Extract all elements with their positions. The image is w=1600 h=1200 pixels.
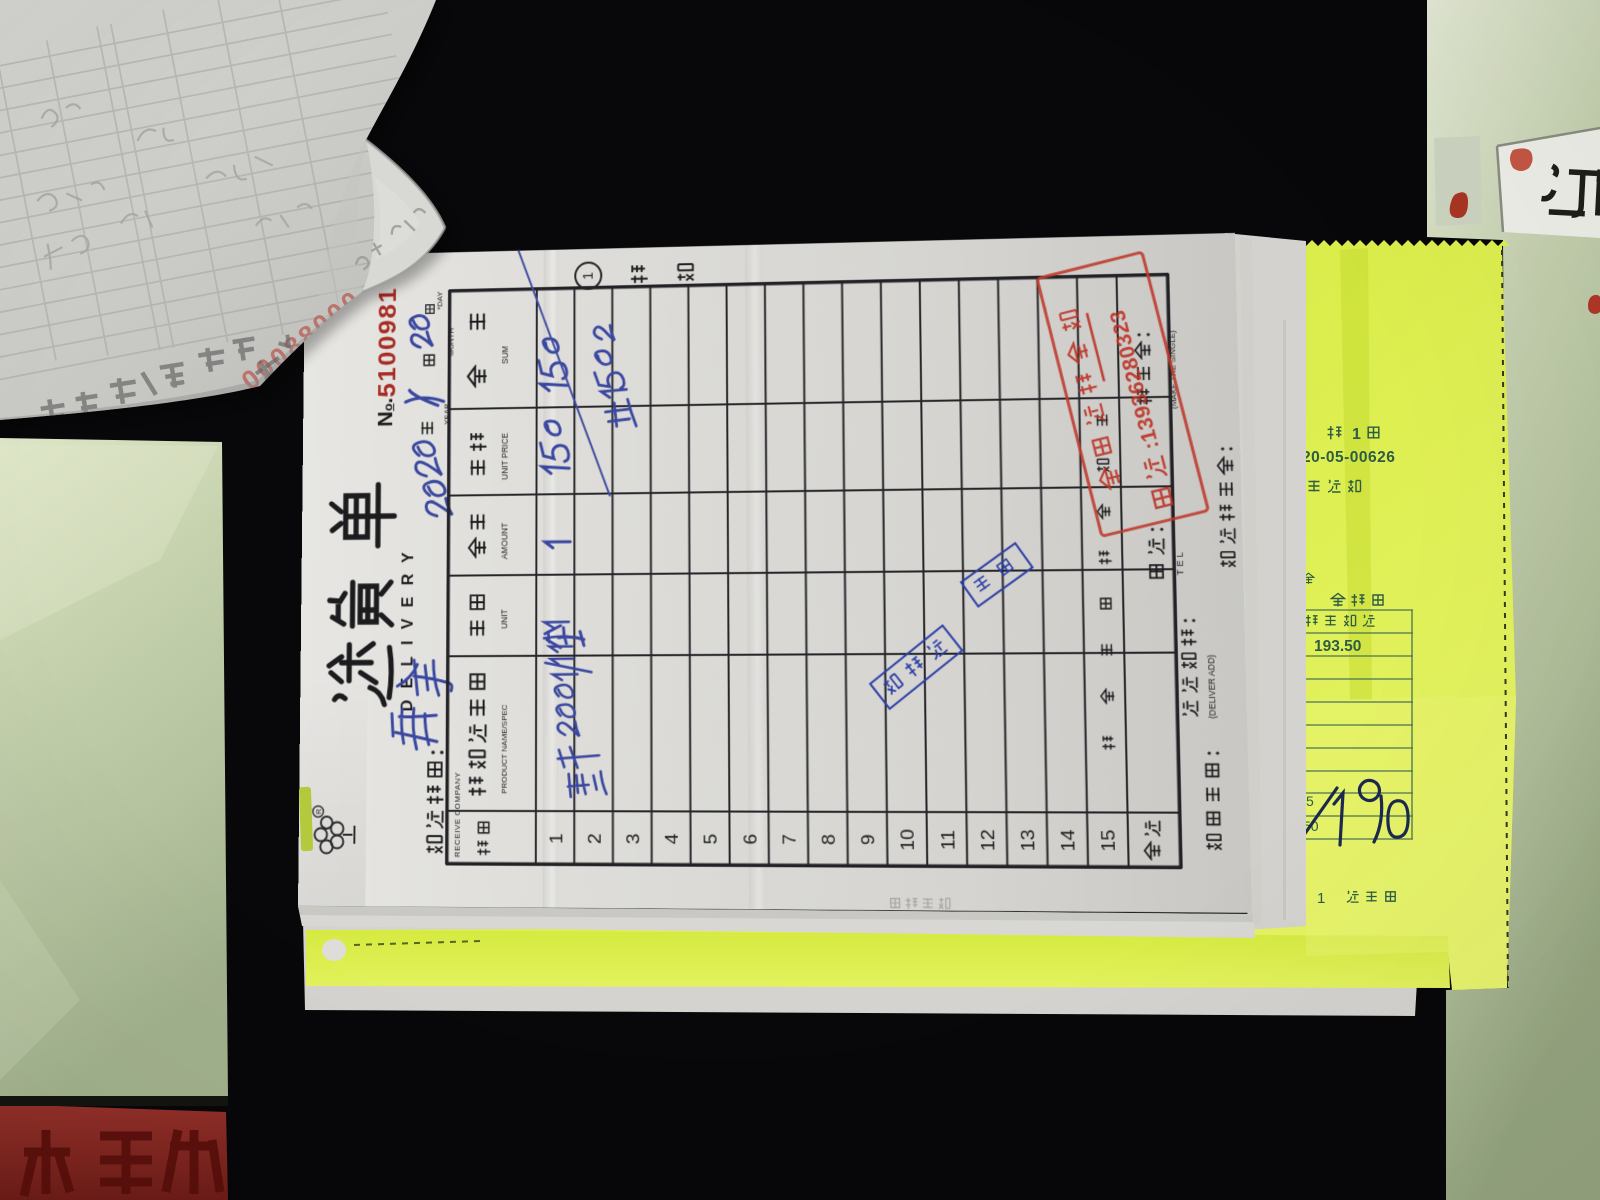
svg-text:3: 3 xyxy=(622,833,643,844)
svg-text:1: 1 xyxy=(1352,426,1361,443)
svg-text:11: 11 xyxy=(937,830,959,851)
svg-text:7: 7 xyxy=(778,834,799,845)
svg-text:4: 4 xyxy=(661,833,682,844)
svg-text:1: 1 xyxy=(1317,890,1325,907)
svg-text:15: 15 xyxy=(1097,829,1120,851)
svg-text:AMOUNT: AMOUNT xyxy=(500,523,509,560)
svg-text:UNIT: UNIT xyxy=(500,609,509,629)
svg-text:14: 14 xyxy=(1057,829,1079,851)
svg-text::13936280323: :13936280323 xyxy=(1106,307,1165,451)
svg-text:193.50: 193.50 xyxy=(1314,638,1361,655)
svg-text:5: 5 xyxy=(1306,793,1314,809)
svg-text:R: R xyxy=(314,808,323,814)
svg-text:20-05-00626: 20-05-00626 xyxy=(1302,449,1395,466)
svg-text:13: 13 xyxy=(1017,829,1039,851)
svg-text:9: 9 xyxy=(857,834,879,845)
svg-text:PRODUCT NAME/SPEC: PRODUCT NAME/SPEC xyxy=(499,704,509,794)
svg-text:2: 2 xyxy=(584,833,605,844)
svg-text:1: 1 xyxy=(546,833,567,844)
svg-text:10: 10 xyxy=(896,829,918,851)
svg-text:6: 6 xyxy=(739,834,760,845)
svg-text:8: 8 xyxy=(818,834,840,845)
svg-text:5: 5 xyxy=(700,834,721,845)
svg-text:12: 12 xyxy=(977,829,999,851)
